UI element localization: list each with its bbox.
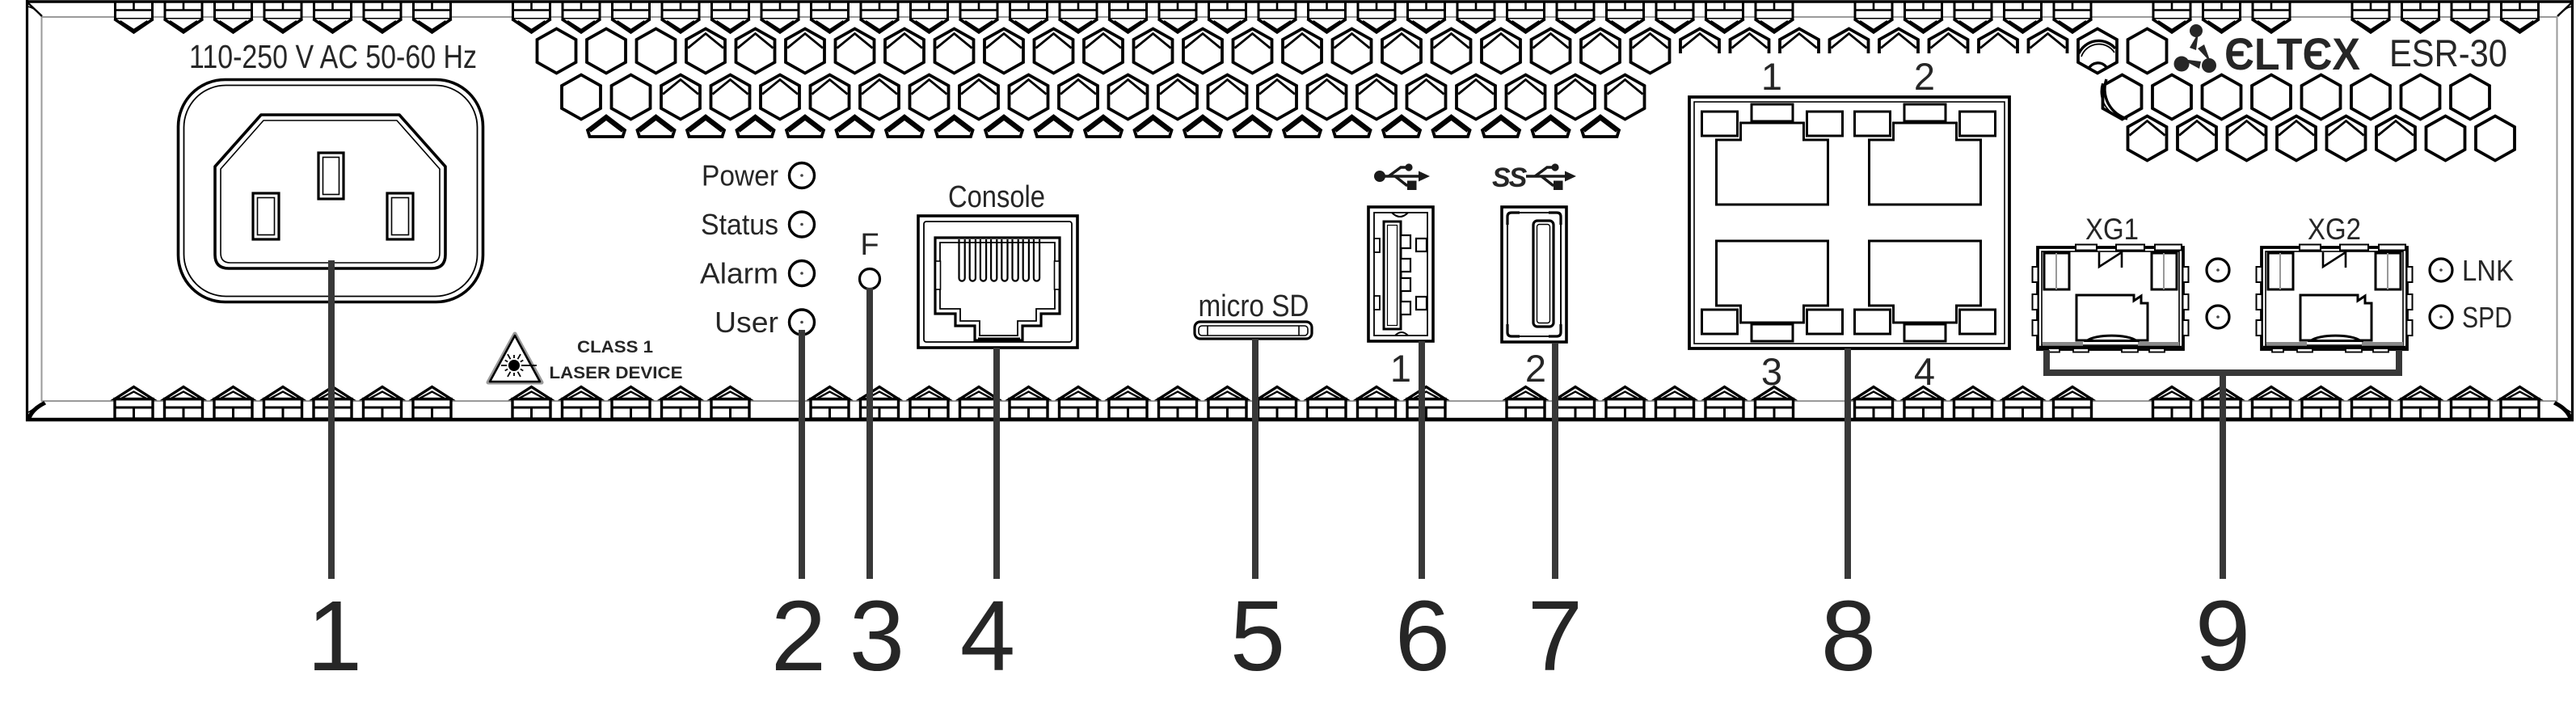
svg-text:micro SD: micro SD <box>1199 289 1309 323</box>
svg-text:ESR-30: ESR-30 <box>2389 32 2507 74</box>
svg-text:F: F <box>860 228 879 262</box>
svg-text:1: 1 <box>1761 55 1782 98</box>
svg-text:2: 2 <box>771 581 826 692</box>
svg-text:110-250 V AC 50-60 Hz: 110-250 V AC 50-60 Hz <box>189 38 477 75</box>
svg-text:SS: SS <box>1492 163 1528 193</box>
svg-text:8: 8 <box>1821 581 1876 692</box>
svg-text:2: 2 <box>1525 347 1546 390</box>
svg-text:ЄLTЄX: ЄLTЄX <box>2224 28 2360 79</box>
svg-text:3: 3 <box>850 581 904 692</box>
svg-text:2: 2 <box>1914 55 1935 98</box>
svg-text:3: 3 <box>1761 350 1782 393</box>
svg-text:CLASS 1: CLASS 1 <box>577 337 653 357</box>
svg-text:7: 7 <box>1528 581 1583 692</box>
svg-text:4: 4 <box>1914 350 1935 393</box>
svg-text:XG2: XG2 <box>2308 213 2361 246</box>
svg-text:4: 4 <box>960 581 1015 692</box>
svg-text:Power: Power <box>702 159 778 192</box>
svg-text:Status: Status <box>701 208 778 241</box>
svg-text:1: 1 <box>307 581 362 692</box>
svg-text:SPD: SPD <box>2462 301 2512 334</box>
svg-text:XG1: XG1 <box>2085 213 2139 246</box>
svg-text:6: 6 <box>1395 581 1450 692</box>
svg-text:Console: Console <box>948 180 1045 214</box>
svg-text:LNK: LNK <box>2462 254 2514 287</box>
svg-text:LASER DEVICE: LASER DEVICE <box>550 363 683 382</box>
svg-text:9: 9 <box>2195 581 2250 692</box>
svg-text:1: 1 <box>1390 347 1411 390</box>
svg-text:Alarm: Alarm <box>700 257 778 290</box>
svg-text:User: User <box>715 306 778 339</box>
svg-text:5: 5 <box>1230 581 1285 692</box>
